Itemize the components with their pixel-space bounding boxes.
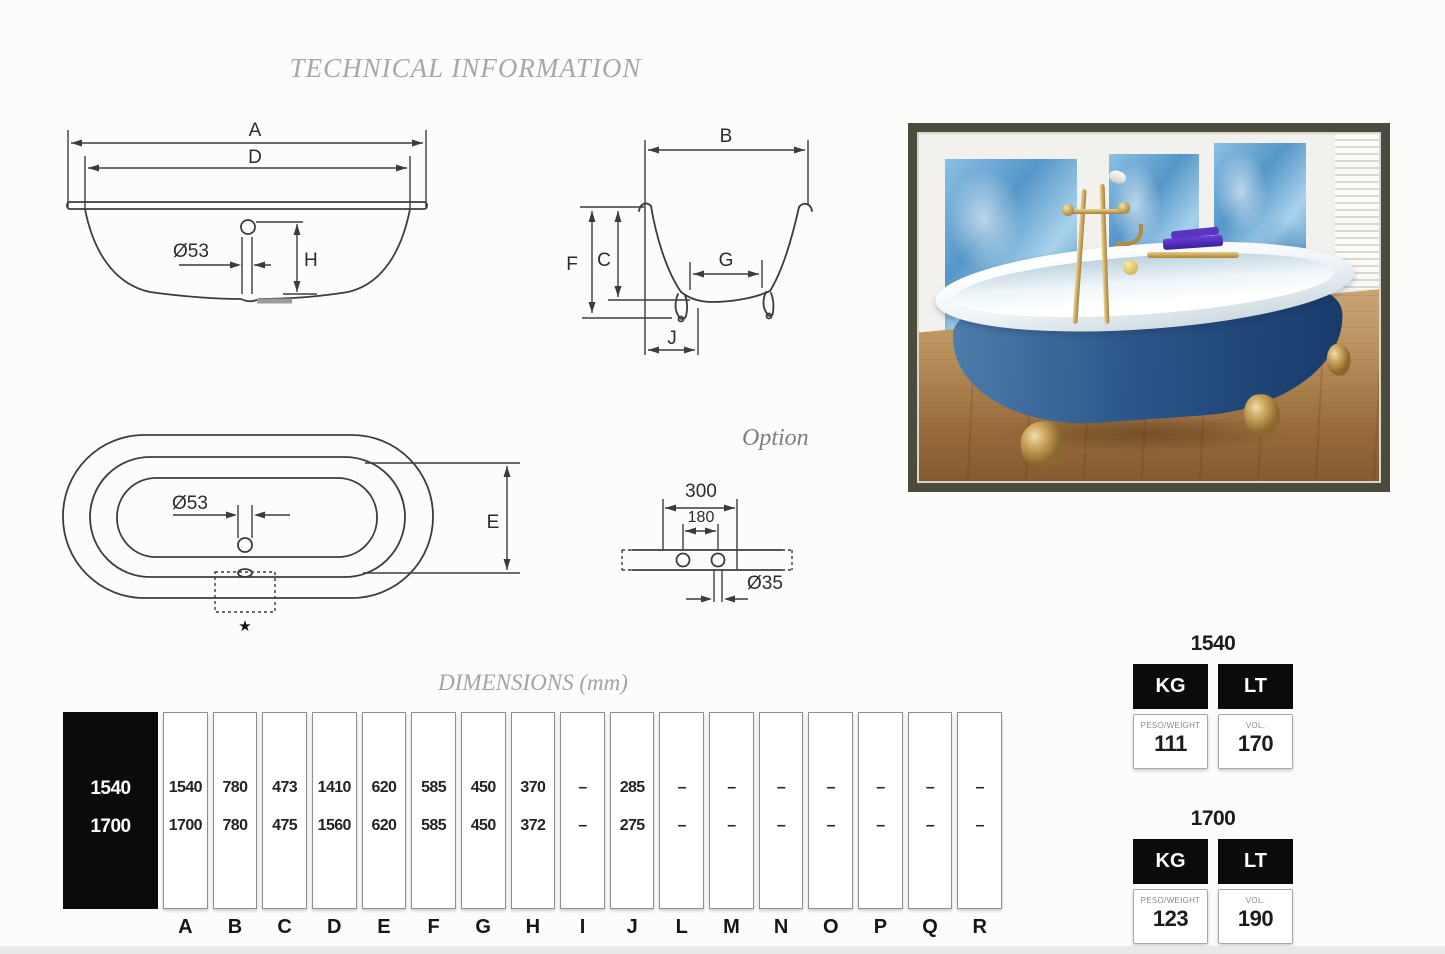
table-column-G: 450 450 xyxy=(461,712,506,909)
tub-top-outline xyxy=(63,435,433,612)
volume-value: 190 xyxy=(1219,906,1292,932)
table-cell: – xyxy=(561,779,604,797)
weight-caption: PESO/WEIGHT xyxy=(1134,721,1207,730)
dimension-label-180: 180 xyxy=(688,509,715,526)
column-letter: P xyxy=(858,916,903,939)
dimension-label-drain-top: Ø53 xyxy=(172,493,208,514)
table-column-Q: – – xyxy=(908,712,953,909)
column-letter: I xyxy=(560,916,605,939)
table-column-A: 1540 1700 xyxy=(163,712,208,909)
dimension-label-hole: Ø35 xyxy=(747,573,783,594)
table-cell: – xyxy=(958,779,1001,797)
weight-value: 123 xyxy=(1134,906,1207,932)
table-cell: 450 xyxy=(462,779,505,797)
table-cell: – xyxy=(760,779,803,797)
kg-unit-box: KG xyxy=(1133,839,1208,884)
table-cell: 780 xyxy=(214,817,257,835)
dimension-label-G: G xyxy=(719,250,734,271)
dimension-label-A: A xyxy=(249,120,262,141)
dimension-label-F: F xyxy=(566,254,578,275)
column-letter: D xyxy=(312,916,357,939)
column-letter: J xyxy=(610,916,655,939)
dimension-label-E: E xyxy=(487,512,500,533)
top-view-drawing: Ø53 E ★ xyxy=(55,412,535,637)
table-cell: 620 xyxy=(363,817,406,835)
value-row: PESO/WEIGHT 111 VOL. 170 xyxy=(1131,714,1295,769)
option-drawing: 300 180 Ø35 xyxy=(610,470,810,610)
dimensions-table-title: DIMENSIONS (mm) xyxy=(383,670,683,696)
kg-unit-box: KG xyxy=(1133,664,1208,709)
column-letter: Q xyxy=(908,916,953,939)
bathtub-claw-foot xyxy=(1243,393,1282,437)
volume-caption: VOL. xyxy=(1219,896,1292,905)
table-column-I: – – xyxy=(560,712,605,909)
column-letter: E xyxy=(362,916,407,939)
unit-row: KG LT xyxy=(1131,664,1295,709)
table-column-J: 285 275 xyxy=(610,712,655,909)
dimension-label-H: H xyxy=(304,250,318,271)
letters-spacer xyxy=(63,916,158,939)
table-column-R: – – xyxy=(957,712,1002,909)
table-column-M: – – xyxy=(709,712,754,909)
page-title: TECHNICAL INFORMATION xyxy=(233,53,698,84)
table-cell: – xyxy=(859,779,902,797)
tub-side-outline xyxy=(67,202,427,301)
dimension-label-300: 300 xyxy=(685,481,717,502)
weight-value-box: PESO/WEIGHT 123 xyxy=(1133,889,1208,944)
table-cell: 1410 xyxy=(313,779,356,797)
table-column-P: – – xyxy=(858,712,903,909)
spec-model-title: 1700 xyxy=(1131,807,1295,831)
faucet-crossbar xyxy=(1067,209,1125,214)
table-cell: 372 xyxy=(512,817,555,835)
dimension-lines xyxy=(580,140,808,355)
dimensions-table: 1540 1700 1540 1700 780 780 473 475 1410… xyxy=(63,712,1002,909)
table-cell: – xyxy=(660,817,703,835)
table-cell: – xyxy=(710,817,753,835)
model-column: 1540 1700 xyxy=(63,712,158,909)
value-row: PESO/WEIGHT 123 VOL. 190 xyxy=(1131,889,1295,944)
side-view-drawing: A D Ø53 H xyxy=(55,118,440,318)
dimension-label-J: J xyxy=(667,328,677,349)
column-letter: G xyxy=(461,916,506,939)
table-cell: 370 xyxy=(512,779,555,797)
table-cell: – xyxy=(909,779,952,797)
table-column-L: – – xyxy=(659,712,704,909)
weight-value-box: PESO/WEIGHT 111 xyxy=(1133,714,1208,769)
volume-value-box: VOL. 170 xyxy=(1218,714,1293,769)
unit-row: KG LT xyxy=(1131,839,1295,884)
table-cell: 1700 xyxy=(164,817,207,835)
column-letter: C xyxy=(262,916,307,939)
dimension-label-B: B xyxy=(720,126,733,147)
column-letter: F xyxy=(411,916,456,939)
dimension-label-drain: Ø53 xyxy=(173,241,209,262)
table-column-O: – – xyxy=(808,712,853,909)
table-column-H: 370 372 xyxy=(511,712,556,909)
faucet-handle xyxy=(1062,204,1074,216)
dimension-label-D: D xyxy=(248,147,262,168)
table-cell: 473 xyxy=(263,779,306,797)
table-cell: 585 xyxy=(412,779,455,797)
bath-tray xyxy=(1147,252,1239,258)
bathtub-claw-foot xyxy=(1325,343,1351,377)
table-cell: – xyxy=(958,817,1001,835)
table-column-E: 620 620 xyxy=(362,712,407,909)
table-cell: – xyxy=(809,817,852,835)
table-cell: 585 xyxy=(412,817,455,835)
table-cell: 1560 xyxy=(313,817,356,835)
table-cell: 475 xyxy=(263,817,306,835)
spec-card-1540: 1540 KG LT PESO/WEIGHT 111 VOL. 170 xyxy=(1131,632,1295,769)
option-title: Option xyxy=(742,425,809,452)
table-cell: – xyxy=(809,779,852,797)
table-cell: 780 xyxy=(214,779,257,797)
column-letter: N xyxy=(759,916,804,939)
faucet-handle xyxy=(1118,202,1130,214)
table-cell: – xyxy=(660,779,703,797)
column-letter: R xyxy=(957,916,1002,939)
weight-caption: PESO/WEIGHT xyxy=(1134,896,1207,905)
spec-card-1700: 1700 KG LT PESO/WEIGHT 123 VOL. 190 xyxy=(1131,807,1295,944)
table-cell: 450 xyxy=(462,817,505,835)
dimension-label-C: C xyxy=(597,250,611,271)
bathroom-scene xyxy=(917,132,1381,483)
spec-model-title: 1540 xyxy=(1131,632,1295,656)
end-view-drawing: B F C G J xyxy=(550,112,830,372)
lt-unit-box: LT xyxy=(1218,839,1293,884)
table-column-N: – – xyxy=(759,712,804,909)
column-letter: O xyxy=(808,916,853,939)
column-letter: M xyxy=(709,916,754,939)
column-letter: H xyxy=(511,916,556,939)
page-edge xyxy=(0,946,1445,954)
volume-value-box: VOL. 190 xyxy=(1218,889,1293,944)
technical-sheet-page: TECHNICAL INFORMATION xyxy=(0,0,1445,954)
volume-caption: VOL. xyxy=(1219,721,1292,730)
column-letter: L xyxy=(659,916,704,939)
lt-unit-box: LT xyxy=(1218,664,1293,709)
weight-value: 111 xyxy=(1134,731,1207,757)
model-label: 1540 xyxy=(63,778,158,800)
table-column-F: 585 585 xyxy=(411,712,456,909)
table-cell: – xyxy=(859,817,902,835)
table-cell: – xyxy=(561,817,604,835)
model-label: 1700 xyxy=(63,816,158,838)
bathtub-claw-foot xyxy=(1019,420,1064,469)
volume-value: 170 xyxy=(1219,731,1292,757)
dimension-lines xyxy=(68,130,426,294)
table-cell: 1540 xyxy=(164,779,207,797)
table-cell: – xyxy=(710,779,753,797)
table-column-B: 780 780 xyxy=(213,712,258,909)
table-cell: – xyxy=(909,817,952,835)
table-cell: 285 xyxy=(611,779,654,797)
column-letters-row: A B C D E F G H I J L M N O P Q R xyxy=(63,916,1002,939)
table-column-C: 473 475 xyxy=(262,712,307,909)
footnote-star: ★ xyxy=(238,618,251,635)
table-cell: 620 xyxy=(363,779,406,797)
soap-dish xyxy=(1123,260,1138,275)
table-column-D: 1410 1560 xyxy=(312,712,357,909)
table-cell: 275 xyxy=(611,817,654,835)
column-letter: A xyxy=(163,916,208,939)
product-photo xyxy=(908,123,1390,492)
column-letter: B xyxy=(213,916,258,939)
table-cell: – xyxy=(760,817,803,835)
